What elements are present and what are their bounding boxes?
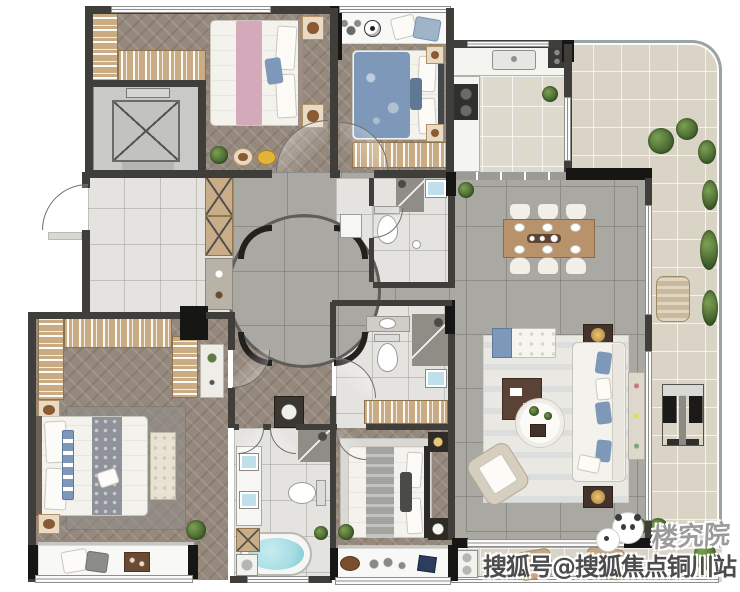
wall-bed3-top-b <box>366 424 454 430</box>
master-sink-1 <box>240 454 258 470</box>
nightstand-2a <box>426 46 444 64</box>
nightstand-2b <box>426 124 444 142</box>
column-master-top <box>180 306 208 340</box>
master-shower-head <box>318 432 327 441</box>
wall-bed1-bed2 <box>330 8 338 172</box>
master-toilet-tank <box>316 480 326 506</box>
column-living-left-1 <box>446 172 456 196</box>
vanity-sink-bath2 <box>379 318 396 329</box>
sofa-pillow-white-1 <box>595 377 612 400</box>
sofa-pillow-blue-2 <box>595 401 613 425</box>
wall-bed3-left <box>330 428 336 548</box>
nightstand-3b <box>428 518 448 540</box>
master-bed-runner <box>92 417 122 515</box>
kitchen-stove <box>454 84 478 120</box>
bed-pink-runner <box>236 21 262 125</box>
wall-living-top-black <box>566 168 652 180</box>
coffee-table-round <box>515 398 565 448</box>
window-kitchen-balcony <box>565 98 570 160</box>
post-bed3-bay-left <box>330 548 338 580</box>
post-master-bay-left <box>28 545 38 579</box>
elevator-door <box>126 88 170 98</box>
balcony-top-glass <box>340 7 450 12</box>
gym-machine <box>662 384 704 446</box>
watermark-account: 搜狐号@搜狐焦点铜川站 <box>462 554 736 582</box>
plate-5 <box>542 245 553 254</box>
plate-4 <box>514 245 525 254</box>
panda-ear-1 <box>615 514 622 521</box>
toy-teddy <box>233 148 253 166</box>
shower-head-bath1 <box>398 180 406 188</box>
wall-entry-b <box>82 230 90 315</box>
kitchen-sliding-door <box>452 172 566 180</box>
panda-eye-2 <box>630 524 635 530</box>
bath-cabinet <box>236 528 260 552</box>
wall-mbath-top-c <box>296 424 332 430</box>
bed3-bay-sill <box>338 545 450 548</box>
plant-living-nw <box>458 182 474 198</box>
tray-north <box>591 328 605 342</box>
bed3-cushion-dark <box>400 472 412 512</box>
shower-head-bath2 <box>434 318 443 327</box>
bench-blue-throw <box>492 328 512 358</box>
wall-vestibule-a <box>369 178 374 206</box>
entry-step <box>48 232 82 240</box>
master-teddy-box-2 <box>38 514 60 534</box>
window-master-bay <box>36 576 192 582</box>
washer <box>236 554 258 576</box>
sofa-back <box>612 344 624 480</box>
vanity-vestibule <box>340 214 362 238</box>
window-kitchen <box>468 42 548 46</box>
plant-master-bath <box>314 526 328 540</box>
sink-bath1 <box>426 180 446 197</box>
nightstand-1a <box>302 16 324 40</box>
plant-master <box>186 520 206 540</box>
balcony-pillow-dot <box>370 26 375 31</box>
shoe-cabinet-lower <box>205 216 233 256</box>
wall-bed1-bottom <box>88 170 272 178</box>
plate-3 <box>570 223 581 232</box>
tray-south <box>591 490 605 504</box>
master-headboard <box>36 416 42 516</box>
wall-bed2-kitchen2 <box>446 44 454 174</box>
plant-bedroom-pink <box>210 146 228 164</box>
toy-duck <box>257 150 276 165</box>
wall-left-upper <box>85 8 93 174</box>
master-closet-right <box>172 336 198 398</box>
master-bay-sill <box>38 542 194 545</box>
wardrobe-shelf <box>118 50 206 82</box>
panda-eye-1 <box>621 524 626 530</box>
wardrobe-bath2-hall <box>364 400 448 424</box>
wall-elevator-top <box>88 80 206 87</box>
window-living-right-1 <box>646 206 651 314</box>
bay3-hat <box>340 556 360 571</box>
console-shelf <box>628 372 645 460</box>
plant-kitchen <box>542 86 558 102</box>
plate-1 <box>514 223 525 232</box>
balcony-plant-1 <box>648 128 674 154</box>
bed3-runner <box>366 447 394 537</box>
panda-logo-icon <box>596 510 648 558</box>
nightstand-3a <box>428 432 448 452</box>
window-mbath <box>248 577 308 582</box>
bay3-blue-box <box>417 555 437 573</box>
master-sink-2 <box>240 492 258 508</box>
watermark-brand: 楼究院 <box>651 514 731 555</box>
wall-living-left-lower <box>448 430 455 540</box>
hall-console <box>205 258 233 310</box>
wall-left-lower <box>28 312 36 582</box>
balcony-plant-5 <box>700 230 718 270</box>
master-closet-left <box>38 318 64 400</box>
wall-bed2-bottom-a <box>330 170 340 178</box>
sink-bath2 <box>426 370 446 387</box>
panda-ear-2 <box>634 514 641 521</box>
wardrobe-left <box>92 12 118 82</box>
elevator-car-icon <box>112 100 180 162</box>
plate-6 <box>570 245 581 254</box>
sofa-pillow-blue-1 <box>595 351 613 375</box>
dining-chair-4 <box>509 257 531 275</box>
bed-blue-cushion <box>410 78 422 110</box>
post-bed3-bay-right <box>448 545 458 581</box>
dining-chair-5 <box>537 257 559 275</box>
window-top <box>112 7 270 12</box>
post-master-bay-right <box>188 545 198 579</box>
bay-tray <box>124 552 150 572</box>
bay3-decor-sprigs <box>368 556 408 572</box>
plant-bedroom3 <box>338 524 354 540</box>
wall-bath2-top <box>332 300 452 306</box>
wall-bath1-bottom <box>373 282 452 288</box>
dining-chair-6 <box>565 257 587 275</box>
wall-bath2-left-a <box>330 302 336 358</box>
wall-master-right-b <box>228 388 235 428</box>
elevator-sill <box>122 162 174 170</box>
bed-blue-duvet <box>354 52 410 138</box>
wall-bed2-bottom-b <box>374 170 452 178</box>
master-bench <box>150 432 176 500</box>
plate-greens-1 <box>529 406 539 416</box>
shoe-cabinet-upper <box>205 176 233 216</box>
wall-elevator-right <box>198 80 206 172</box>
entry-door-swing <box>42 184 88 230</box>
wall-vestibule-b <box>369 238 374 282</box>
round-table-tray <box>530 424 546 437</box>
window-bed3-bay <box>336 578 450 584</box>
plate-2 <box>542 223 553 232</box>
kitchen-faucet <box>511 56 517 62</box>
dining-centerpiece <box>527 234 561 243</box>
floor-drain-bath1 <box>412 240 421 249</box>
master-toilet <box>288 482 316 504</box>
panda-small-eye <box>604 536 609 541</box>
bed-pink-blue-cushion <box>264 57 283 85</box>
plate-greens-2 <box>544 412 552 420</box>
window-living-right-2 <box>646 352 651 520</box>
bay-pillow-2 <box>85 551 110 574</box>
master-closet-top <box>64 318 172 348</box>
floor-plan-image: 楼究院 搜狐号@搜狐焦点铜川站 <box>0 0 740 592</box>
lounge-chair-balcony <box>656 276 690 322</box>
master-pillow-blue <box>62 430 74 500</box>
wall-bed2-kitchen <box>446 8 454 46</box>
balcony-plant-3 <box>698 140 716 164</box>
balcony-plant-6 <box>702 290 718 326</box>
master-dresser <box>200 344 224 398</box>
wall-master-right-a <box>228 312 235 350</box>
balcony-pillow-blue <box>412 16 441 42</box>
toilet-bath2 <box>377 343 398 372</box>
balcony-plant-4 <box>702 180 718 210</box>
toilet-tank-bath2 <box>374 334 400 342</box>
toy-drone <box>340 18 362 36</box>
balcony-plant-2 <box>676 118 698 140</box>
wall-master-top-a <box>28 312 180 319</box>
